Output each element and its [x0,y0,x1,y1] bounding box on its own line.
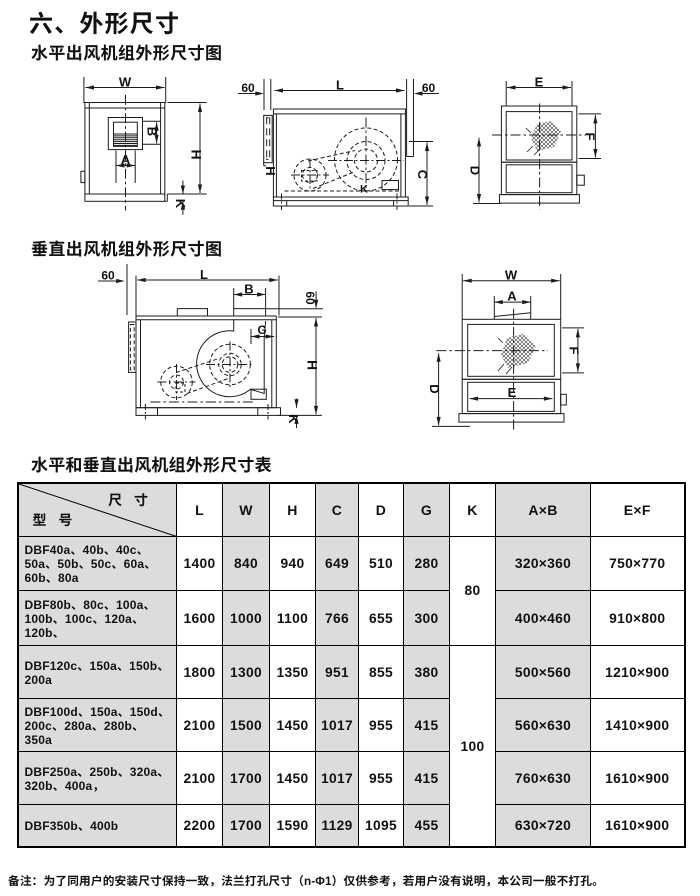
svg-text:F: F [567,347,582,355]
svg-text:K: K [360,184,368,196]
svg-text:60: 60 [241,81,255,95]
svg-text:D: D [468,166,483,175]
svg-text:L: L [336,78,344,92]
svg-text:K: K [173,199,188,209]
svg-text:E: E [535,74,544,89]
svg-text:W: W [505,267,518,282]
svg-text:H: H [305,360,321,370]
svg-text:B: B [244,281,253,296]
svg-text:E: E [508,385,517,400]
svg-text:60: 60 [101,269,115,283]
svg-text:F: F [583,133,598,141]
svg-text:D: D [427,384,442,393]
svg-text:H: H [263,166,278,175]
svg-text:H: H [189,149,205,159]
svg-text:60: 60 [422,81,436,95]
svg-text:A: A [507,289,517,304]
svg-text:C: C [415,170,430,180]
svg-text:B: B [145,127,160,136]
svg-text:K: K [286,414,301,424]
svg-text:W: W [119,76,132,89]
svg-text:L: L [200,267,208,282]
